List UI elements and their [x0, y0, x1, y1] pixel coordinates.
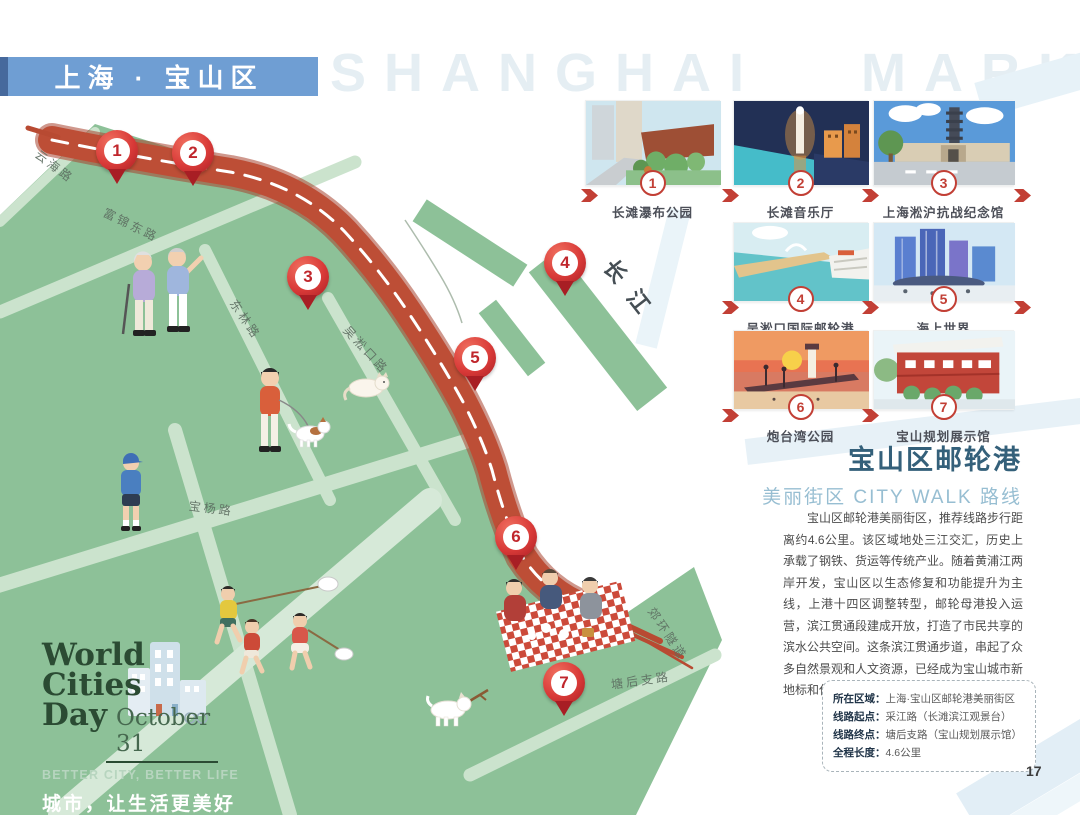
spot-label: 上海淞沪抗战纪念馆	[873, 202, 1014, 221]
logo-date: October 31	[116, 705, 242, 757]
spot-number-badge: 6	[788, 394, 814, 420]
spot-image-changtan-waterfall-park: 1	[585, 100, 720, 186]
info-row-length: 全程长度：4.6公里	[833, 744, 1025, 762]
page-number: 17	[1026, 763, 1042, 779]
map-pin-1[interactable]: 1	[96, 130, 138, 186]
logo-word-day: Day	[42, 700, 107, 730]
pin-number: 3	[295, 264, 321, 290]
logo-slogan-en: BETTER CITY, BETTER LIFE	[42, 768, 242, 782]
spot-card-1[interactable]: 1 长滩瀑布公园	[585, 100, 720, 221]
map-pin-3[interactable]: 3	[287, 256, 329, 312]
map-pin-2[interactable]: 2	[172, 132, 214, 188]
info-value: 上海·宝山区邮轮港美丽街区	[886, 693, 1016, 705]
pin-number: 5	[462, 345, 488, 371]
logo-divider	[106, 761, 218, 763]
map-pin-4[interactable]: 4	[544, 242, 586, 298]
info-row-start: 线路起点：采江路（长滩滨江观景台）	[833, 708, 1025, 726]
info-label: 线路起点：	[833, 711, 886, 723]
logo-word-cities: Cities	[42, 670, 242, 700]
info-value: 塘后支路（宝山规划展示馆）	[886, 729, 1023, 741]
spot-card-5[interactable]: 5 海上世界	[873, 222, 1014, 337]
spot-image-baoshan-planning-hall: 7	[873, 330, 1014, 410]
info-value: 采江路（长滩滨江观景台）	[886, 711, 1012, 723]
pin-tail	[466, 376, 484, 391]
page-banner: 上海 · 宝山区	[0, 57, 318, 96]
pin-number: 4	[552, 250, 578, 276]
spot-image-paotaiwan-park: 6	[733, 330, 868, 410]
spot-label: 长滩音乐厅	[733, 202, 868, 221]
info-label: 全程长度：	[833, 747, 886, 759]
spot-card-7[interactable]: 7 宝山规划展示馆	[873, 330, 1014, 445]
pin-number: 2	[180, 140, 206, 166]
pin-tail	[507, 555, 525, 570]
spot-card-6[interactable]: 6 炮台湾公园	[733, 330, 868, 445]
pin-tail	[556, 281, 574, 296]
spot-number-badge: 3	[931, 170, 957, 196]
banner-accent	[0, 57, 8, 96]
spot-card-4[interactable]: 4 吴淞口国际邮轮港	[733, 222, 868, 337]
info-row-area: 所在区域：上海·宝山区邮轮港美丽街区	[833, 690, 1025, 708]
spot-number-badge: 2	[788, 170, 814, 196]
spot-image-changtan-concert-hall: 2	[733, 100, 868, 186]
info-row-end: 线路终点：塘后支路（宝山规划展示馆）	[833, 726, 1025, 744]
info-label: 线路终点：	[833, 729, 886, 741]
logo-word-world: World	[42, 640, 242, 670]
pin-tail	[555, 701, 573, 716]
article-body: 宝山区邮轮港美丽街区，推荐线路步行距离约4.6公里。该区域地处三江交汇，历史上承…	[783, 508, 1023, 702]
map-pin-7[interactable]: 7	[543, 662, 585, 718]
spot-number-badge: 7	[931, 394, 957, 420]
spot-image-sea-world: 5	[873, 222, 1014, 302]
page-title: 上海 · 宝山区	[54, 58, 263, 95]
pin-tail	[184, 171, 202, 186]
info-value: 4.6公里	[886, 747, 922, 759]
magazine-page: SHANGHAI MARK	[0, 0, 1080, 815]
route-info-box: 所在区域：上海·宝山区邮轮港美丽街区 线路起点：采江路（长滩滨江观景台） 线路终…	[822, 680, 1036, 772]
pin-number: 1	[104, 138, 130, 164]
article-title: 宝山区邮轮港	[758, 438, 1022, 477]
map-pin-6[interactable]: 6	[495, 516, 537, 572]
pin-tail	[108, 169, 126, 184]
spot-number-badge: 1	[640, 170, 666, 196]
spot-card-2[interactable]: 2 长滩音乐厅	[733, 100, 868, 221]
map-pin-5[interactable]: 5	[454, 337, 496, 393]
logo-slogan-cn: 城市，让生活更美好	[42, 789, 242, 815]
pin-number: 7	[551, 670, 577, 696]
world-cities-day-logo: World Cities Day October 31 BETTER CITY,…	[42, 640, 242, 815]
pin-tail	[299, 295, 317, 310]
info-label: 所在区域：	[833, 693, 886, 705]
spot-image-wusongkou-cruise-port: 4	[733, 222, 868, 302]
spot-card-3[interactable]: 3 上海淞沪抗战纪念馆	[873, 100, 1014, 221]
spot-number-badge: 4	[788, 286, 814, 312]
spot-number-badge: 5	[931, 286, 957, 312]
spot-label: 长滩瀑布公园	[585, 202, 720, 221]
spot-image-songhu-memorial: 3	[873, 100, 1014, 186]
pin-number: 6	[503, 524, 529, 550]
article-subtitle: 美丽街区 CITY WALK 路线	[758, 482, 1022, 509]
